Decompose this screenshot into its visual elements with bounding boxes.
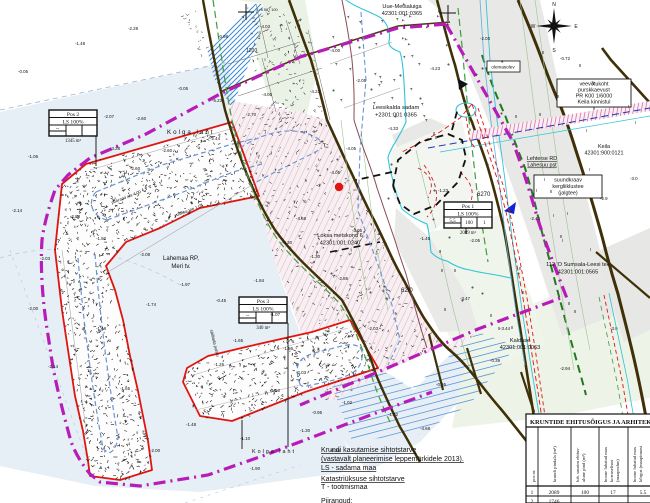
svg-text:T - tootmismaa: T - tootmismaa: [321, 484, 368, 491]
svg-text:krundi pindala (m²): krundi pindala (m²): [552, 446, 557, 482]
svg-text:-2.05: -2.05: [356, 78, 367, 83]
svg-text:Kaldase: Kaldase: [510, 338, 530, 344]
svg-text:II: II: [592, 81, 594, 86]
svg-text:Piirangud:: Piirangud:: [321, 498, 353, 503]
svg-text:42301:001:0565: 42301:001:0565: [558, 270, 598, 276]
svg-text:II: II: [454, 268, 456, 273]
svg-text:Keila: Keila: [598, 144, 610, 150]
svg-text:-2.05: -2.05: [470, 238, 481, 243]
svg-text:-1.26: -1.26: [214, 362, 225, 367]
svg-text:-2.03: -2.03: [480, 36, 491, 41]
svg-text:Kolga laht: Kolga laht: [167, 129, 215, 136]
svg-text:Meri tv.: Meri tv.: [171, 264, 191, 270]
svg-text:alune pind (m²): alune pind (m²): [581, 453, 586, 482]
svg-text:-0.05: -0.05: [178, 86, 189, 91]
svg-text:I: I: [628, 104, 629, 109]
svg-text:II: II: [444, 307, 446, 312]
svg-text:-0.95: -0.95: [312, 410, 323, 415]
svg-text:-0.39: -0.39: [490, 358, 501, 363]
svg-text:42301:001:0365: 42301:001:0365: [382, 11, 422, 17]
svg-text:-2.70: -2.70: [246, 112, 257, 117]
svg-text:-0.30: -0.30: [282, 240, 293, 245]
svg-text:Pos 1: Pos 1: [462, 204, 474, 210]
svg-text:Loksa metskond 6: Loksa metskond 6: [317, 233, 362, 239]
svg-text:-2.60: -2.60: [130, 166, 141, 171]
svg-text:112 'O Sumsala-Leesi tee: 112 'O Sumsala-Leesi tee: [546, 262, 610, 268]
svg-text:5,5: 5,5: [449, 219, 456, 224]
svg-text:II: II: [550, 189, 552, 194]
svg-text:1200: 1200: [246, 48, 257, 54]
svg-text:II: II: [557, 94, 559, 99]
svg-text:kõrgus (maapinnast: kõrgus (maapinnast: [638, 445, 643, 482]
svg-text:-3.05: -3.05: [352, 228, 363, 233]
svg-text:pos nr.: pos nr.: [531, 470, 536, 482]
svg-text:suundkraav: suundkraav: [554, 178, 582, 184]
svg-text:6270: 6270: [477, 192, 491, 198]
svg-text:-4.05: -4.05: [346, 146, 357, 151]
svg-text:-1.30: -1.30: [300, 428, 311, 433]
svg-text:-4.23: -4.23: [430, 66, 441, 71]
svg-text:-3.0: -3.0: [630, 176, 638, 181]
svg-text:-1.86: -1.86: [283, 346, 294, 351]
svg-text:-2.03: -2.03: [40, 256, 51, 261]
svg-text:2089: 2089: [549, 490, 560, 496]
svg-text:-3.28: -3.28: [110, 146, 121, 151]
svg-text:-2.44: -2.44: [210, 136, 221, 141]
svg-text:-3.44: -3.44: [500, 326, 511, 331]
svg-text:-1.02: -1.02: [342, 400, 353, 405]
svg-text:42301:001:0063: 42301:001:0063: [500, 345, 540, 351]
svg-text:-2.94: -2.94: [560, 366, 571, 371]
svg-text:-1.50: -1.50: [270, 388, 281, 393]
svg-text:-2.08: -2.08: [140, 252, 151, 257]
svg-text:kergliiklustee: kergliiklustee: [552, 184, 583, 190]
svg-text:I: I: [553, 213, 554, 218]
svg-text:-2.60: -2.60: [162, 148, 173, 153]
svg-text:-0.05: -0.05: [18, 69, 29, 74]
svg-text:(maapealne): (maapealne): [615, 459, 620, 482]
svg-text:-4.68: -4.68: [420, 426, 431, 431]
svg-text:--: --: [56, 127, 60, 132]
svg-text:(vastavalt planeerimise leppem: (vastavalt planeerimise leppemärkidele 2…: [321, 456, 464, 463]
svg-text:KRUNTIDE EHITUSÕIGUS JA ARHITE: KRUNTIDE EHITUSÕIGUS JA ARHITEKTU: [530, 418, 650, 426]
svg-text:I: I: [562, 238, 563, 243]
svg-text:II: II: [433, 131, 435, 136]
svg-text:II: II: [568, 301, 570, 306]
svg-text:-1.48: -1.48: [186, 422, 197, 427]
svg-text:17: 17: [610, 490, 616, 496]
svg-text:Uue-Metsaluiga: Uue-Metsaluiga: [382, 4, 422, 10]
svg-text:I: I: [544, 177, 545, 182]
svg-text:Keila kinnistul: Keila kinnistul: [578, 100, 611, 106]
svg-text:-1.02: -1.02: [388, 412, 399, 417]
svg-text:I: I: [635, 120, 636, 125]
svg-text:E: E: [574, 24, 578, 30]
svg-text:1746: 1746: [549, 499, 560, 503]
svg-text:II: II: [539, 112, 541, 117]
svg-text:II: II: [579, 63, 581, 68]
svg-text:-4.33: -4.33: [388, 126, 399, 131]
svg-text:LS 100%: LS 100%: [458, 211, 479, 217]
svg-text:-1.44: -1.44: [96, 326, 107, 331]
svg-text:II: II: [490, 313, 492, 318]
svg-text:-1.97: -1.97: [180, 282, 191, 287]
svg-text:-5.23: -5.23: [212, 98, 223, 103]
svg-text:-2.44: -2.44: [530, 216, 541, 221]
svg-text:II: II: [435, 135, 437, 140]
svg-text:II: II: [574, 309, 576, 314]
svg-text:-1.48: -1.48: [75, 41, 86, 46]
svg-text:--: --: [246, 314, 250, 319]
svg-text:-1.90: -1.90: [250, 466, 261, 471]
svg-text:I: I: [590, 247, 591, 252]
svg-text:42301:900:0121: 42301:900:0121: [585, 151, 624, 157]
svg-text:42301:001:0240: 42301:001:0240: [320, 241, 360, 247]
svg-text:62/0: 62/0: [401, 288, 413, 294]
svg-text:-2.60: -2.60: [136, 116, 147, 121]
svg-text:korruselisus: korruselisus: [609, 460, 614, 482]
svg-text:I: I: [567, 211, 568, 216]
svg-text:-2.00: -2.00: [28, 306, 39, 311]
svg-text:Katastriüksuse sihtotstarve: Katastriüksuse sihtotstarve: [321, 476, 405, 483]
svg-text:-4.00: -4.00: [330, 48, 341, 53]
svg-text:-1.07: -1.07: [270, 312, 281, 317]
svg-text:Lehterse RD: Lehterse RD: [527, 156, 557, 162]
svg-text:-2.03: -2.03: [296, 370, 307, 375]
svg-text:100: 100: [465, 221, 473, 226]
svg-text:-4.23: -4.23: [310, 89, 321, 94]
svg-text:-1.65: -1.65: [120, 386, 131, 391]
svg-text:Krundi kasutamise sihtotstarve: Krundi kasutamise sihtotstarve: [321, 447, 416, 454]
svg-text:S: S: [552, 48, 556, 54]
svg-text:(jalgtee): (jalgtee): [558, 191, 578, 197]
svg-text:LS 100%: LS 100%: [63, 119, 84, 125]
svg-text:I: I: [536, 188, 537, 193]
svg-text:II: II: [515, 114, 517, 119]
svg-text:-2.28: -2.28: [128, 26, 139, 31]
svg-text:LS - sadama maa: LS - sadama maa: [321, 465, 376, 472]
svg-text:-0.72: -0.72: [560, 56, 571, 61]
svg-text:-1.92: -1.92: [96, 236, 107, 241]
svg-text:340 m²: 340 m²: [256, 325, 270, 331]
svg-text:-1.23: -1.23: [438, 188, 449, 193]
svg-text:W: W: [531, 24, 536, 30]
svg-text:100: 100: [581, 490, 589, 496]
svg-text:1345 m²: 1345 m²: [65, 138, 82, 144]
svg-text:X=6 587 100: X=6 587 100: [256, 8, 278, 12]
svg-text:-2.00: -2.00: [150, 448, 161, 453]
svg-text:-0.98: -0.98: [218, 34, 229, 39]
svg-text:-4.03: -4.03: [260, 24, 271, 29]
svg-text:-1.10: -1.10: [240, 436, 251, 441]
svg-text:hoone lubatud max: hoone lubatud max: [632, 446, 637, 482]
svg-text:Pos 3: Pos 3: [257, 299, 269, 305]
svg-text:N: N: [552, 2, 556, 8]
svg-text:-4.68: -4.68: [296, 216, 307, 221]
svg-text:Lahesuu pst: Lahesuu pst: [527, 163, 557, 169]
svg-text:-1.74: -1.74: [146, 302, 157, 307]
svg-text:2: 2: [531, 499, 534, 503]
svg-text:II: II: [542, 50, 544, 55]
svg-text:-2.14: -2.14: [48, 364, 59, 369]
svg-text:Pos 2: Pos 2: [67, 112, 79, 118]
svg-text:II: II: [511, 325, 513, 330]
svg-text:II: II: [522, 290, 524, 295]
svg-text:-2.03: -2.03: [368, 326, 379, 331]
svg-text:-0.45: -0.45: [216, 298, 227, 303]
svg-text:I: I: [589, 167, 590, 172]
svg-text:-2.86: -2.86: [338, 276, 349, 281]
svg-text:-2.07: -2.07: [104, 114, 115, 119]
svg-text:-2.88: -2.88: [70, 214, 81, 219]
svg-text:II: II: [593, 106, 595, 111]
svg-text:-1.65: -1.65: [233, 338, 244, 343]
svg-text:-4.05: -4.05: [262, 92, 273, 97]
svg-text:-4.05: -4.05: [330, 170, 341, 175]
svg-text:olemasolev: olemasolev: [491, 65, 515, 70]
svg-text:lub. suurim ehitus-: lub. suurim ehitus-: [575, 447, 580, 482]
svg-text:-2.14: -2.14: [12, 208, 23, 213]
svg-text:-0.95: -0.95: [436, 382, 447, 387]
svg-text:-1.30: -1.30: [310, 254, 321, 259]
svg-text:Leesikalda sadam: Leesikalda sadam: [373, 105, 420, 111]
svg-text:-1.06: -1.06: [28, 154, 39, 159]
svg-text:II: II: [439, 249, 441, 254]
svg-text:Kolga laht: Kolga laht: [252, 449, 296, 455]
svg-text:I: I: [586, 128, 587, 133]
svg-text:5.5: 5.5: [640, 490, 647, 496]
svg-text:Lahemaa RP,: Lahemaa RP,: [163, 256, 199, 262]
svg-text:-2.9: -2.9: [600, 196, 608, 201]
svg-text:-1.45: -1.45: [420, 236, 431, 241]
svg-text:1: 1: [531, 490, 534, 496]
svg-text:-1.84: -1.84: [254, 278, 265, 283]
svg-text:-3.47: -3.47: [460, 296, 471, 301]
svg-text:hoone lubatud max: hoone lubatud max: [603, 446, 608, 482]
svg-text:II: II: [441, 268, 443, 273]
svg-text:2089 m²: 2089 m²: [460, 230, 477, 236]
